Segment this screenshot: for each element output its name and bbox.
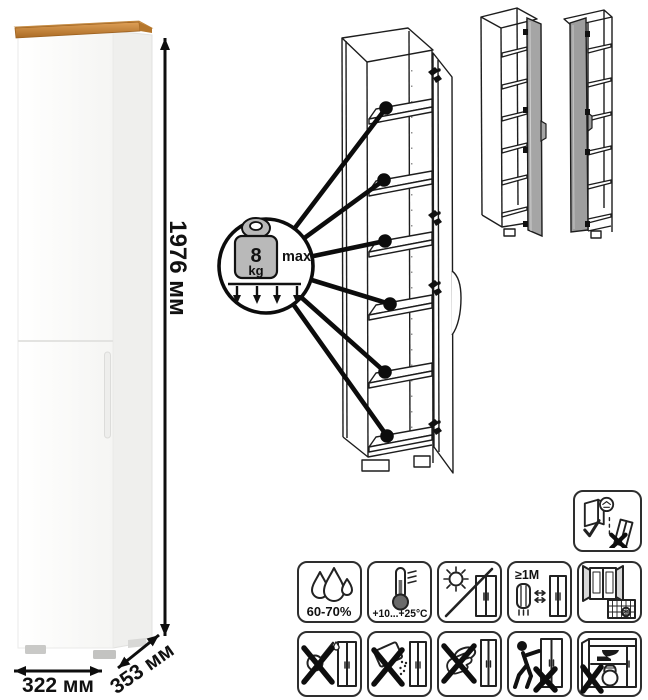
gray-door-right — [527, 18, 542, 236]
temperature-label: +10...+25°C — [372, 608, 427, 620]
cabinet-photo — [0, 0, 200, 700]
shelf-pointer-dots — [377, 101, 397, 443]
sun-icon — [449, 573, 462, 586]
door-handle-groove — [105, 352, 111, 438]
x-mark — [611, 534, 625, 547]
shelves — [369, 99, 432, 452]
anchor-to-wall-icon — [573, 490, 642, 552]
keep-distance-from-heater-icon: ≥1М — [507, 561, 572, 623]
checkmark — [584, 520, 598, 535]
variant-a-shelves — [502, 47, 527, 217]
distance-label: ≥1М — [515, 568, 539, 582]
load-limit-badge: 8 kg max — [219, 218, 313, 313]
cabinet-line-drawing — [342, 28, 461, 473]
door-handle-notch — [452, 271, 461, 335]
variant-door-left — [554, 3, 618, 243]
variant-b-handle — [588, 113, 592, 131]
product-sheet: { "dimensions": { "height": "1976 мм", "… — [0, 0, 648, 700]
cabinet-body — [18, 31, 152, 648]
kettlebell-icon — [602, 665, 617, 686]
water-drops-icon: 60-70% — [297, 561, 362, 623]
no-direct-sunlight-icon — [437, 561, 502, 623]
variant-door-right — [477, 5, 551, 243]
load-unit: kg — [248, 263, 263, 278]
no-abrasive-powder-icon — [367, 631, 432, 697]
no-dragging-cabinet-icon — [507, 631, 572, 697]
open-window-calendar-icon: 21 — [577, 561, 642, 623]
weight-icon: 8 kg — [235, 218, 277, 278]
powder-dots — [399, 661, 407, 675]
anchor-to-wall-pictogram — [578, 495, 638, 548]
no-overloading-icon — [577, 631, 642, 697]
open-door — [433, 53, 461, 473]
shelf-load-diagram: 8 kg max — [180, 0, 480, 500]
person-head — [517, 641, 527, 651]
load-qualifier: max — [282, 249, 311, 265]
no-pouring-liquids-icon — [297, 631, 362, 697]
calendar-day: 21 — [622, 610, 630, 617]
thermometer-icon: +10...+25°C — [367, 561, 432, 623]
variant-b-shelves — [588, 44, 611, 223]
humidity-label: 60-70% — [306, 604, 351, 619]
care-icons-grid: 60-70% +10...+25°C — [297, 561, 642, 697]
no-wet-sponge-icon — [437, 631, 502, 697]
variant-a-handle — [541, 121, 546, 141]
